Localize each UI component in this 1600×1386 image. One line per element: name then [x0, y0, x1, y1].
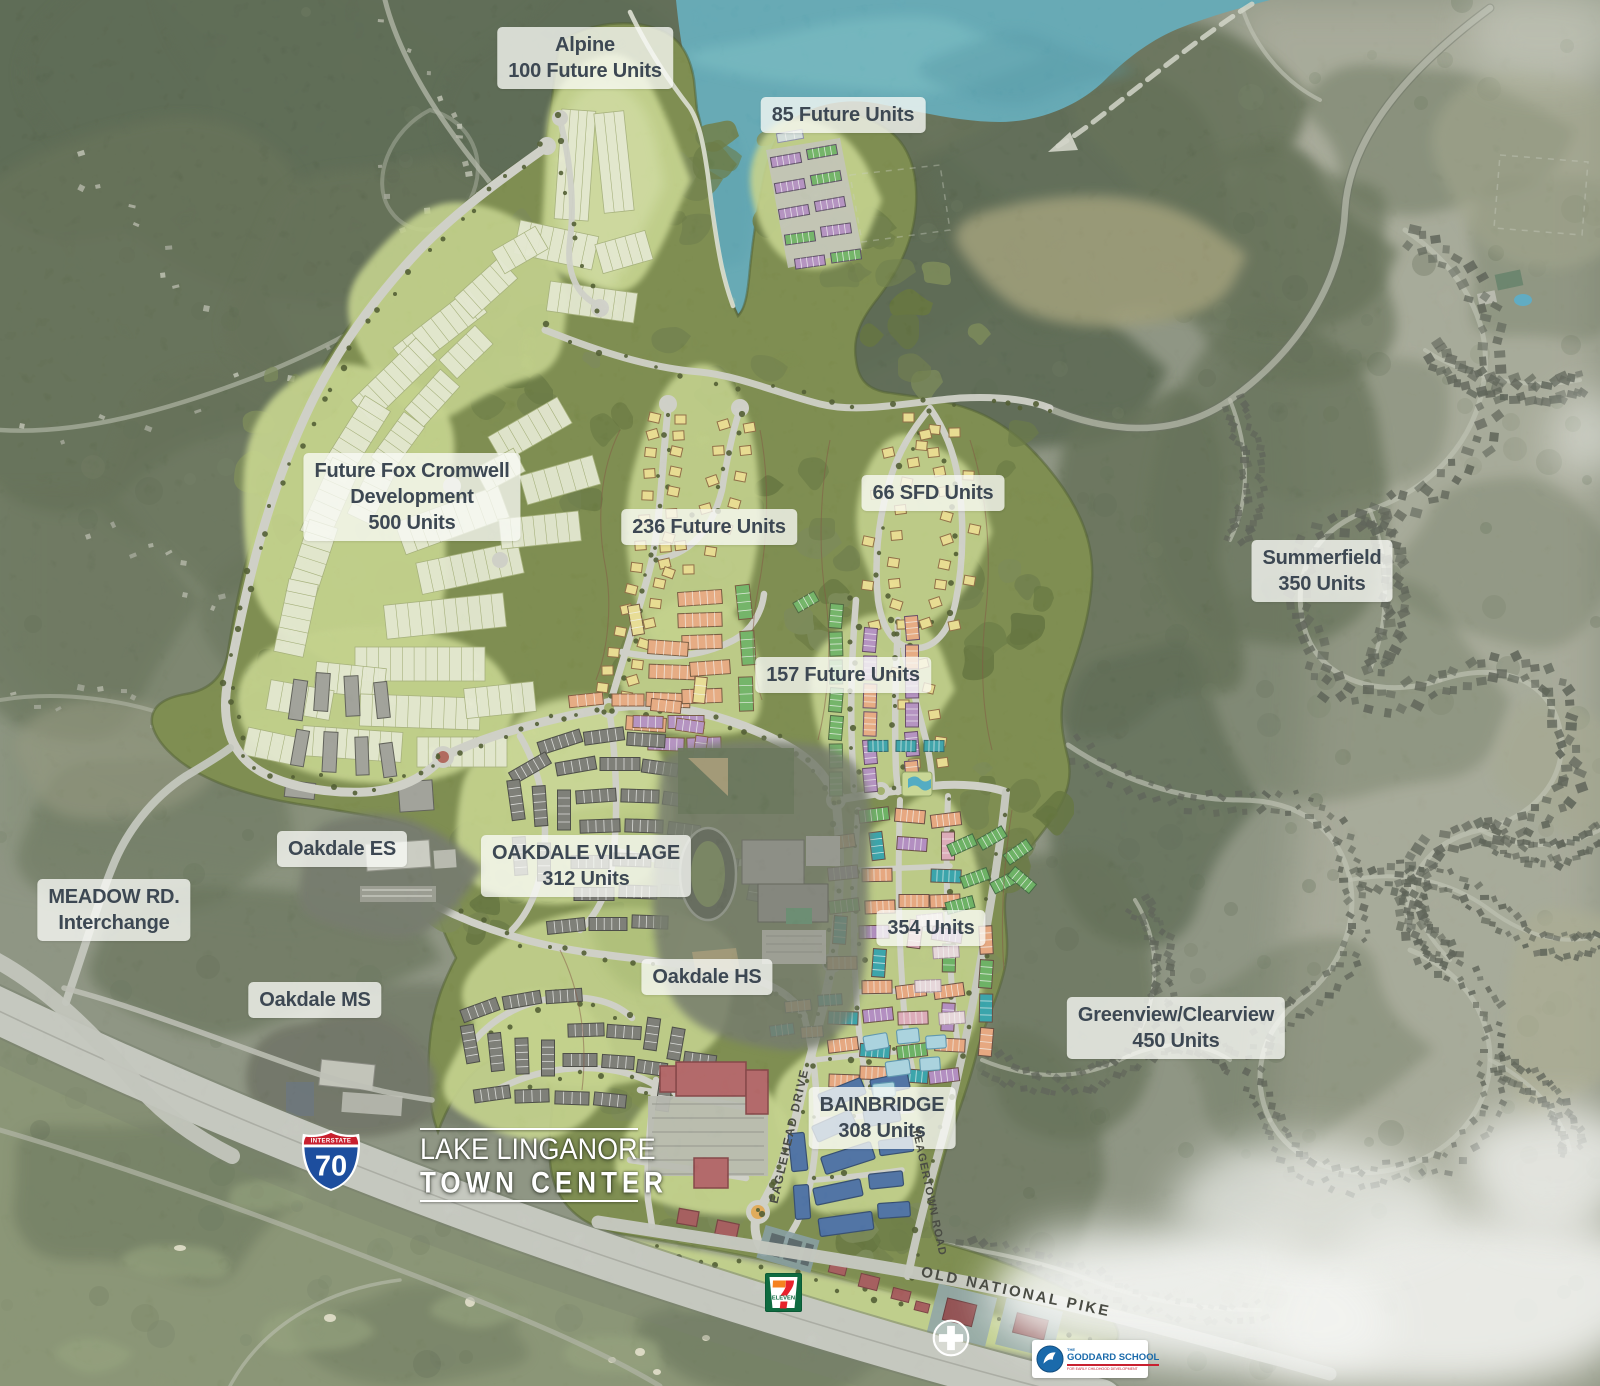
svg-text:ELEVEN: ELEVEN	[772, 1296, 795, 1302]
svg-text:70: 70	[315, 1151, 347, 1183]
svg-text:INTERSTATE: INTERSTATE	[311, 1138, 352, 1144]
